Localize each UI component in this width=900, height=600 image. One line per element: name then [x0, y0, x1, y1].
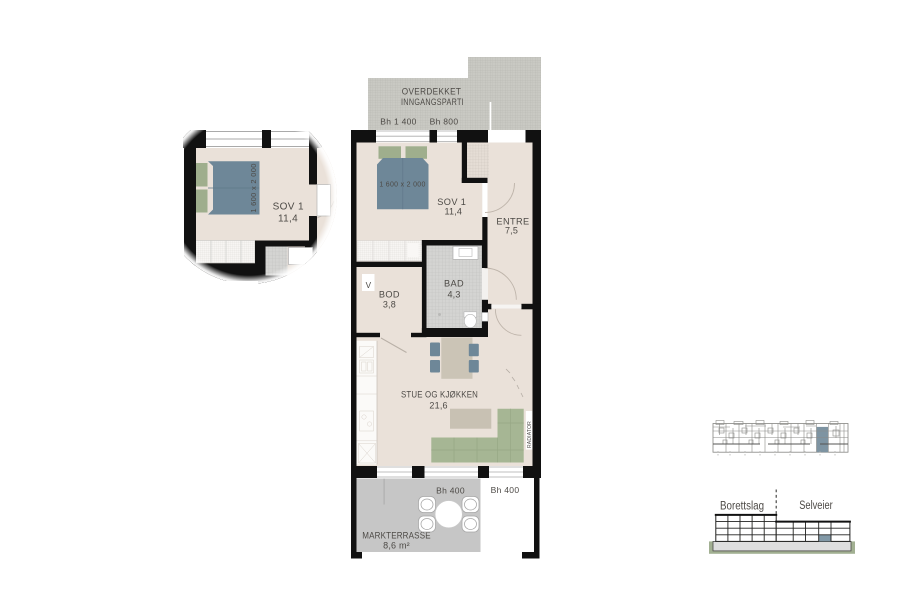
svg-text:3,8: 3,8: [383, 299, 396, 309]
svg-text:SOV 1: SOV 1: [437, 197, 466, 207]
svg-text:MARKTERRASSE: MARKTERRASSE: [362, 531, 431, 541]
svg-text:8,6 m²: 8,6 m²: [383, 540, 410, 550]
svg-text:21,6: 21,6: [429, 401, 447, 411]
svg-text:Bh 400: Bh 400: [436, 486, 465, 496]
svg-text:INNGANGSPARTI: INNGANGSPARTI: [401, 97, 464, 107]
svg-text:BOD: BOD: [379, 290, 400, 300]
svg-text:Bh 1 400: Bh 1 400: [380, 117, 416, 127]
svg-text:4,3: 4,3: [447, 290, 460, 300]
svg-text:STUE OG KJØKKEN: STUE OG KJØKKEN: [401, 389, 478, 399]
svg-text:V: V: [366, 281, 372, 290]
svg-text:11,4: 11,4: [444, 206, 462, 216]
svg-text:Selveier: Selveier: [799, 500, 833, 512]
svg-text:Bh 800: Bh 800: [430, 117, 459, 127]
svg-text:BAD: BAD: [444, 279, 464, 289]
svg-text:RADIATOR: RADIATOR: [527, 421, 533, 448]
svg-text:1 600 x 2 000: 1 600 x 2 000: [379, 182, 425, 189]
svg-text:Bh 400: Bh 400: [491, 485, 520, 495]
svg-text:7,5: 7,5: [505, 225, 518, 235]
svg-text:OVERDEKKET: OVERDEKKET: [402, 86, 462, 96]
svg-text:Borettslag: Borettslag: [720, 501, 764, 513]
